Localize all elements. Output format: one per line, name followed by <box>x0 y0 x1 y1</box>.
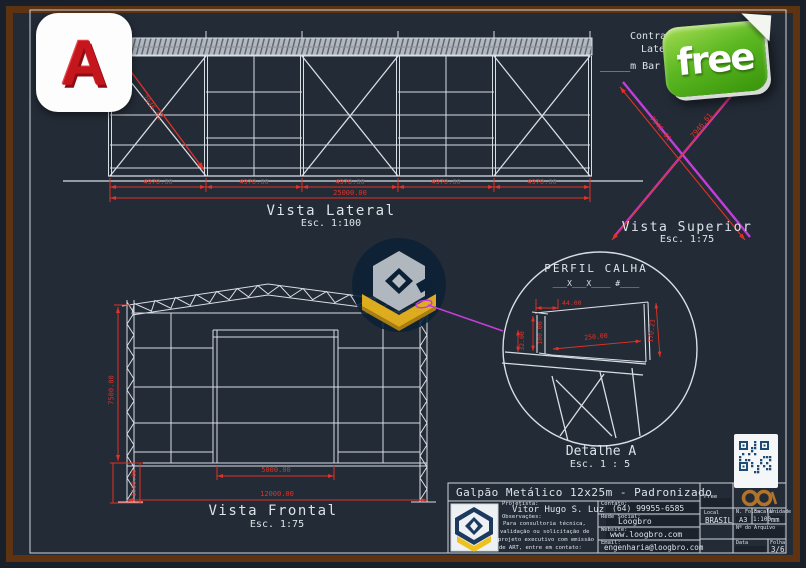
titleblock-title: Galpão Metálico 12x25m - Padronizado <box>456 487 712 498</box>
frontal-view-title: Vista Frontal <box>208 504 337 518</box>
local-value: BRASIL <box>705 517 732 525</box>
escala-value: 1:100 <box>753 517 771 523</box>
detail-dim-web: 100.00 <box>537 321 544 344</box>
detail-dim-top: 44.00 <box>562 300 582 307</box>
obs-line-2: validação ou solicitação de <box>500 530 589 536</box>
obs-line-1: Para consultoria técnica, <box>503 522 586 528</box>
lateral-bay-dim-3: 4970.00 <box>335 179 365 186</box>
formato-value: A3 <box>739 517 747 524</box>
rede-value: Loogbro <box>618 518 652 526</box>
lateral-bay-dim-4: 4970.00 <box>431 179 461 186</box>
data-label: Data <box>736 541 748 546</box>
unidade-label: Unidade <box>770 510 791 515</box>
free-label: Free <box>704 495 717 501</box>
frontal-height-dim: 7500.00 <box>109 375 116 405</box>
lateral-view-title: Vista Lateral <box>266 204 395 218</box>
frontal-footing-dim: 1500.00 <box>131 469 138 496</box>
detail-title: Detalhe A <box>566 445 636 458</box>
obs-line-4: de ART, entre em contato: <box>499 546 582 552</box>
lateral-bay-dim-1: 4970.00 <box>143 179 173 186</box>
detail-scale: Esc. 1 : 5 <box>570 460 630 470</box>
company-logo <box>744 492 777 505</box>
lateral-total-dim: 25000.00 <box>333 190 367 197</box>
superior-view-title: Vista Superior <box>622 221 753 234</box>
arquivo-label: Nº do Arquivo <box>736 526 775 531</box>
email-value: engenharia@loogbro.com <box>604 544 703 552</box>
detail-profile <box>502 302 650 441</box>
frontal-view-scale: Esc. 1:75 <box>250 520 304 530</box>
superior-note-line-3: _____m Bar <box>600 62 660 72</box>
qr-code <box>734 434 778 488</box>
watermark-logo <box>352 238 446 332</box>
detail-heading: PERFIL CALHA <box>544 263 647 274</box>
detail-dim-length: 250.00 <box>584 333 608 342</box>
frontal-total-dim: 12000.00 <box>260 491 294 498</box>
superior-view-scale: Esc. 1:75 <box>660 235 714 245</box>
drawing-sheet: 4970.00 4970.00 4970.00 4970.00 4970.00 … <box>0 0 806 568</box>
observacoes-label: Observações: <box>502 515 542 521</box>
sticker-curl-icon <box>740 13 772 41</box>
lateral-view-scale: Esc. 1:100 <box>301 219 361 229</box>
unidade-value: mm <box>771 517 779 524</box>
folha-value: 3/6 <box>771 546 785 554</box>
autocad-letter: A <box>61 26 107 100</box>
contato-value: (64) 99955-6585 <box>612 505 684 513</box>
obs-line-3: projeto executivo com emissão <box>498 538 594 544</box>
frontal-door-dim: 5000.00 <box>261 467 291 474</box>
lateral-bay-dim-5: 4970.00 <box>527 179 557 186</box>
free-badge-label: free <box>675 34 755 84</box>
website-value: www.loogbro.com <box>610 531 682 539</box>
detail-dim-lip: 32.00 <box>519 331 526 351</box>
detail-subheading: ___X___X____ #____ <box>553 280 640 288</box>
free-badge: free <box>661 20 769 99</box>
autocad-logo: A <box>36 13 132 112</box>
lateral-bay-dim-2: 4970.00 <box>239 179 269 186</box>
